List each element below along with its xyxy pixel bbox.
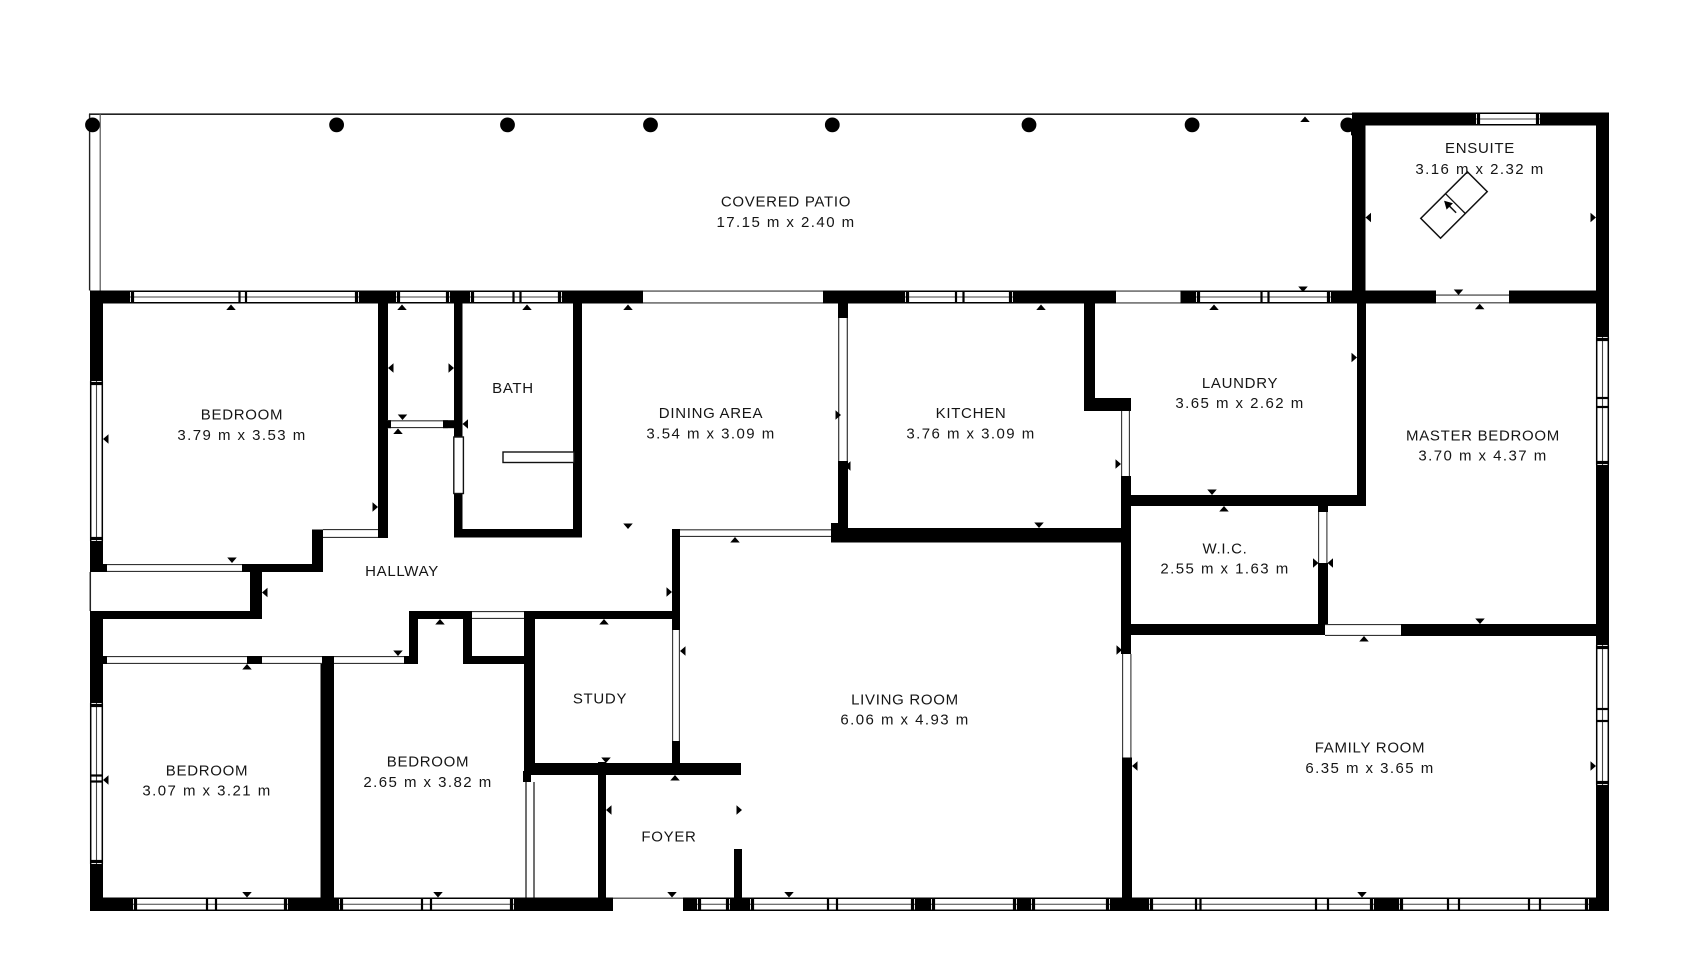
svg-text:2.65 m x 3.82 m: 2.65 m x 3.82 m <box>363 774 492 791</box>
svg-text:MASTER BEDROOM: MASTER BEDROOM <box>1406 428 1560 445</box>
svg-text:3.65 m x 2.62 m: 3.65 m x 2.62 m <box>1175 395 1304 412</box>
svg-text:COVERED PATIO: COVERED PATIO <box>721 194 851 211</box>
svg-text:BEDROOM: BEDROOM <box>387 754 469 771</box>
svg-text:DINING AREA: DINING AREA <box>659 405 763 422</box>
svg-text:3.76 m x 3.09 m: 3.76 m x 3.09 m <box>906 426 1035 443</box>
svg-text:2.55 m x 1.63 m: 2.55 m x 1.63 m <box>1160 561 1289 578</box>
svg-text:FAMILY ROOM: FAMILY ROOM <box>1315 740 1426 757</box>
svg-text:W.I.C.: W.I.C. <box>1202 541 1247 558</box>
svg-text:LIVING ROOM: LIVING ROOM <box>851 692 959 709</box>
svg-text:17.15 m x 2.40 m: 17.15 m x 2.40 m <box>716 214 855 231</box>
svg-text:3.54 m x 3.09 m: 3.54 m x 3.09 m <box>646 426 775 443</box>
svg-text:BEDROOM: BEDROOM <box>201 407 283 424</box>
svg-text:HALLWAY: HALLWAY <box>365 563 439 580</box>
svg-text:ENSUITE: ENSUITE <box>1445 140 1515 157</box>
svg-text:6.35 m x 3.65 m: 6.35 m x 3.65 m <box>1305 760 1434 777</box>
svg-text:FOYER: FOYER <box>641 829 696 846</box>
svg-text:KITCHEN: KITCHEN <box>936 405 1007 422</box>
svg-text:STUDY: STUDY <box>573 691 627 708</box>
svg-text:BEDROOM: BEDROOM <box>166 763 248 780</box>
svg-text:6.06 m x 4.93 m: 6.06 m x 4.93 m <box>840 712 969 729</box>
svg-text:LAUNDRY: LAUNDRY <box>1202 375 1278 392</box>
svg-text:3.07 m x 3.21 m: 3.07 m x 3.21 m <box>142 783 271 800</box>
svg-text:3.79 m x 3.53 m: 3.79 m x 3.53 m <box>177 427 306 444</box>
svg-text:3.70 m x 4.37 m: 3.70 m x 4.37 m <box>1418 448 1547 465</box>
svg-text:BATH: BATH <box>492 380 534 397</box>
svg-text:3.16 m x 2.32 m: 3.16 m x 2.32 m <box>1415 161 1544 178</box>
